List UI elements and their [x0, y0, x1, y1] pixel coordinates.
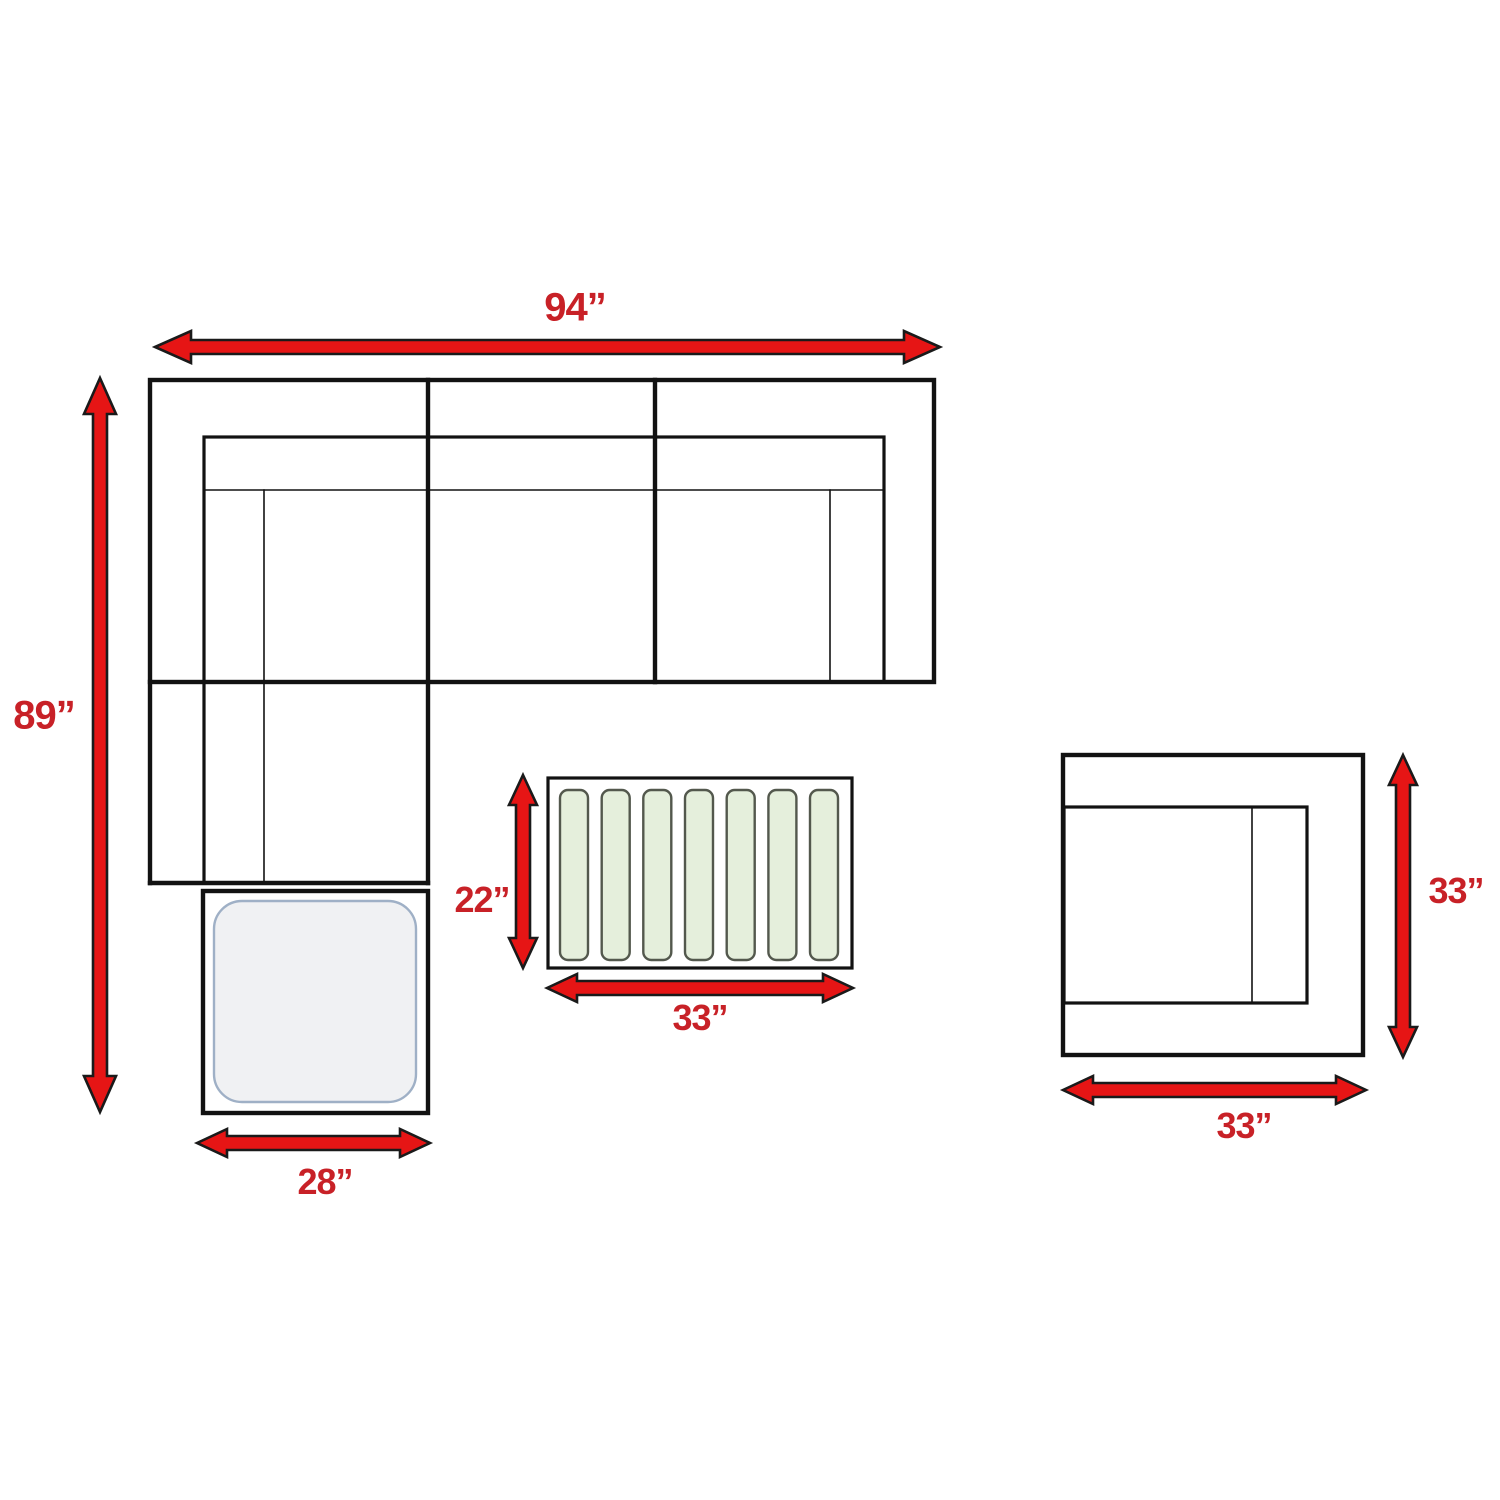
coffee-table-slat — [560, 790, 588, 960]
coffee-table-slat — [768, 790, 796, 960]
coffee-table-depth-arrow — [509, 775, 537, 968]
armchair — [1063, 755, 1363, 1055]
ottoman-width-arrow — [197, 1129, 430, 1157]
ottoman-table — [203, 891, 428, 1113]
sofa-width-arrow — [155, 331, 940, 363]
coffee-table-slat — [643, 790, 671, 960]
chair-outline — [1063, 755, 1363, 1055]
coffee-table — [548, 778, 852, 968]
coffee-table-slat — [810, 790, 838, 960]
chair-depth-label: 33” — [1428, 870, 1483, 912]
coffee-table-slat — [602, 790, 630, 960]
chair-seat-outline — [1064, 807, 1307, 1003]
chair-width-arrow — [1063, 1076, 1366, 1104]
coffee-table-slats — [560, 790, 838, 960]
chair-depth-arrow — [1389, 755, 1417, 1057]
coffee-table-slat — [685, 790, 713, 960]
sectional-depth-arrow — [84, 378, 116, 1112]
floorplan-svg — [0, 0, 1500, 1500]
chair-width-label: 33” — [1216, 1105, 1271, 1147]
sofa-seat-outline — [204, 437, 884, 682]
coffee-table-slat — [727, 790, 755, 960]
ottoman-top-surface — [214, 901, 416, 1102]
sectional-depth-label: 89” — [13, 694, 75, 739]
coffee-table-width-label: 33” — [672, 997, 727, 1039]
sofa-outer-outline — [150, 380, 934, 682]
ottoman-width-label: 28” — [297, 1161, 352, 1203]
coffee-table-depth-label: 22” — [454, 879, 509, 921]
sofa-width-label: 94” — [544, 286, 606, 331]
furniture-dimension-diagram: 94” 89” 22” 33” 28” 33” 33” — [0, 0, 1500, 1500]
